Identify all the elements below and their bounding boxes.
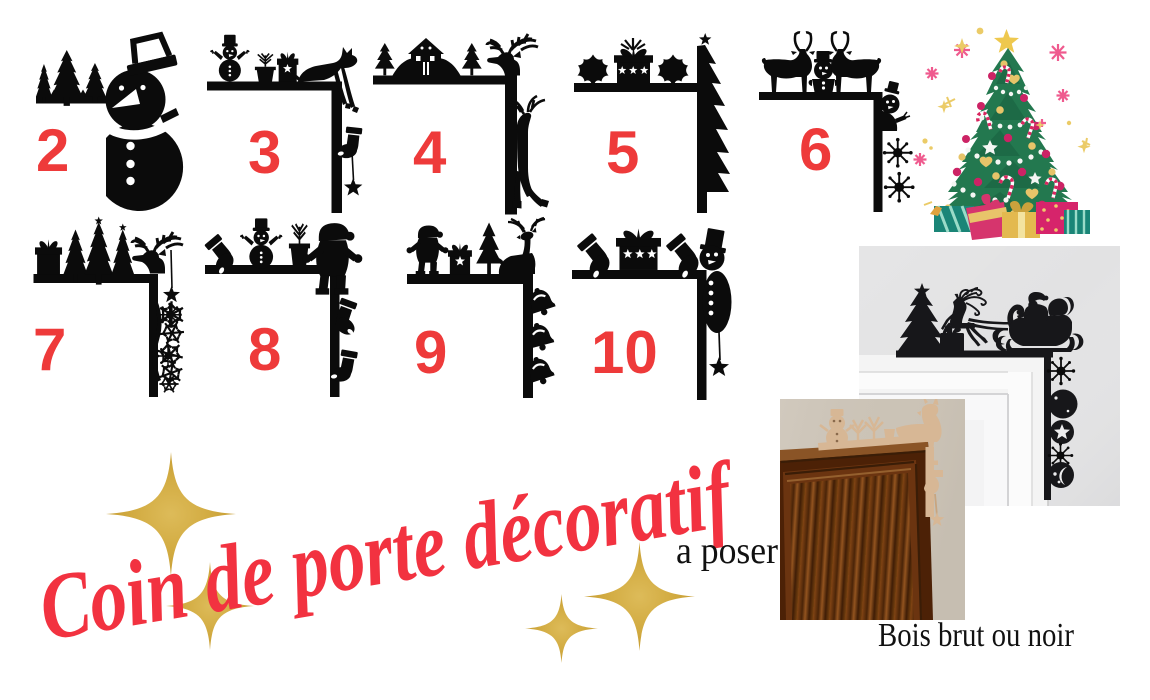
svg-text:3: 3 <box>248 119 281 186</box>
svg-text:Bois brut ou noir: Bois brut ou noir <box>878 617 1075 654</box>
svg-text:6: 6 <box>799 116 832 183</box>
svg-text:2: 2 <box>36 117 69 184</box>
svg-text:9: 9 <box>414 319 447 386</box>
svg-text:8: 8 <box>248 316 281 383</box>
svg-text:4: 4 <box>413 119 447 186</box>
svg-text:10: 10 <box>591 319 658 386</box>
svg-text:a poser: a poser <box>676 530 778 572</box>
svg-text:5: 5 <box>606 119 639 186</box>
svg-text:7: 7 <box>33 316 66 383</box>
